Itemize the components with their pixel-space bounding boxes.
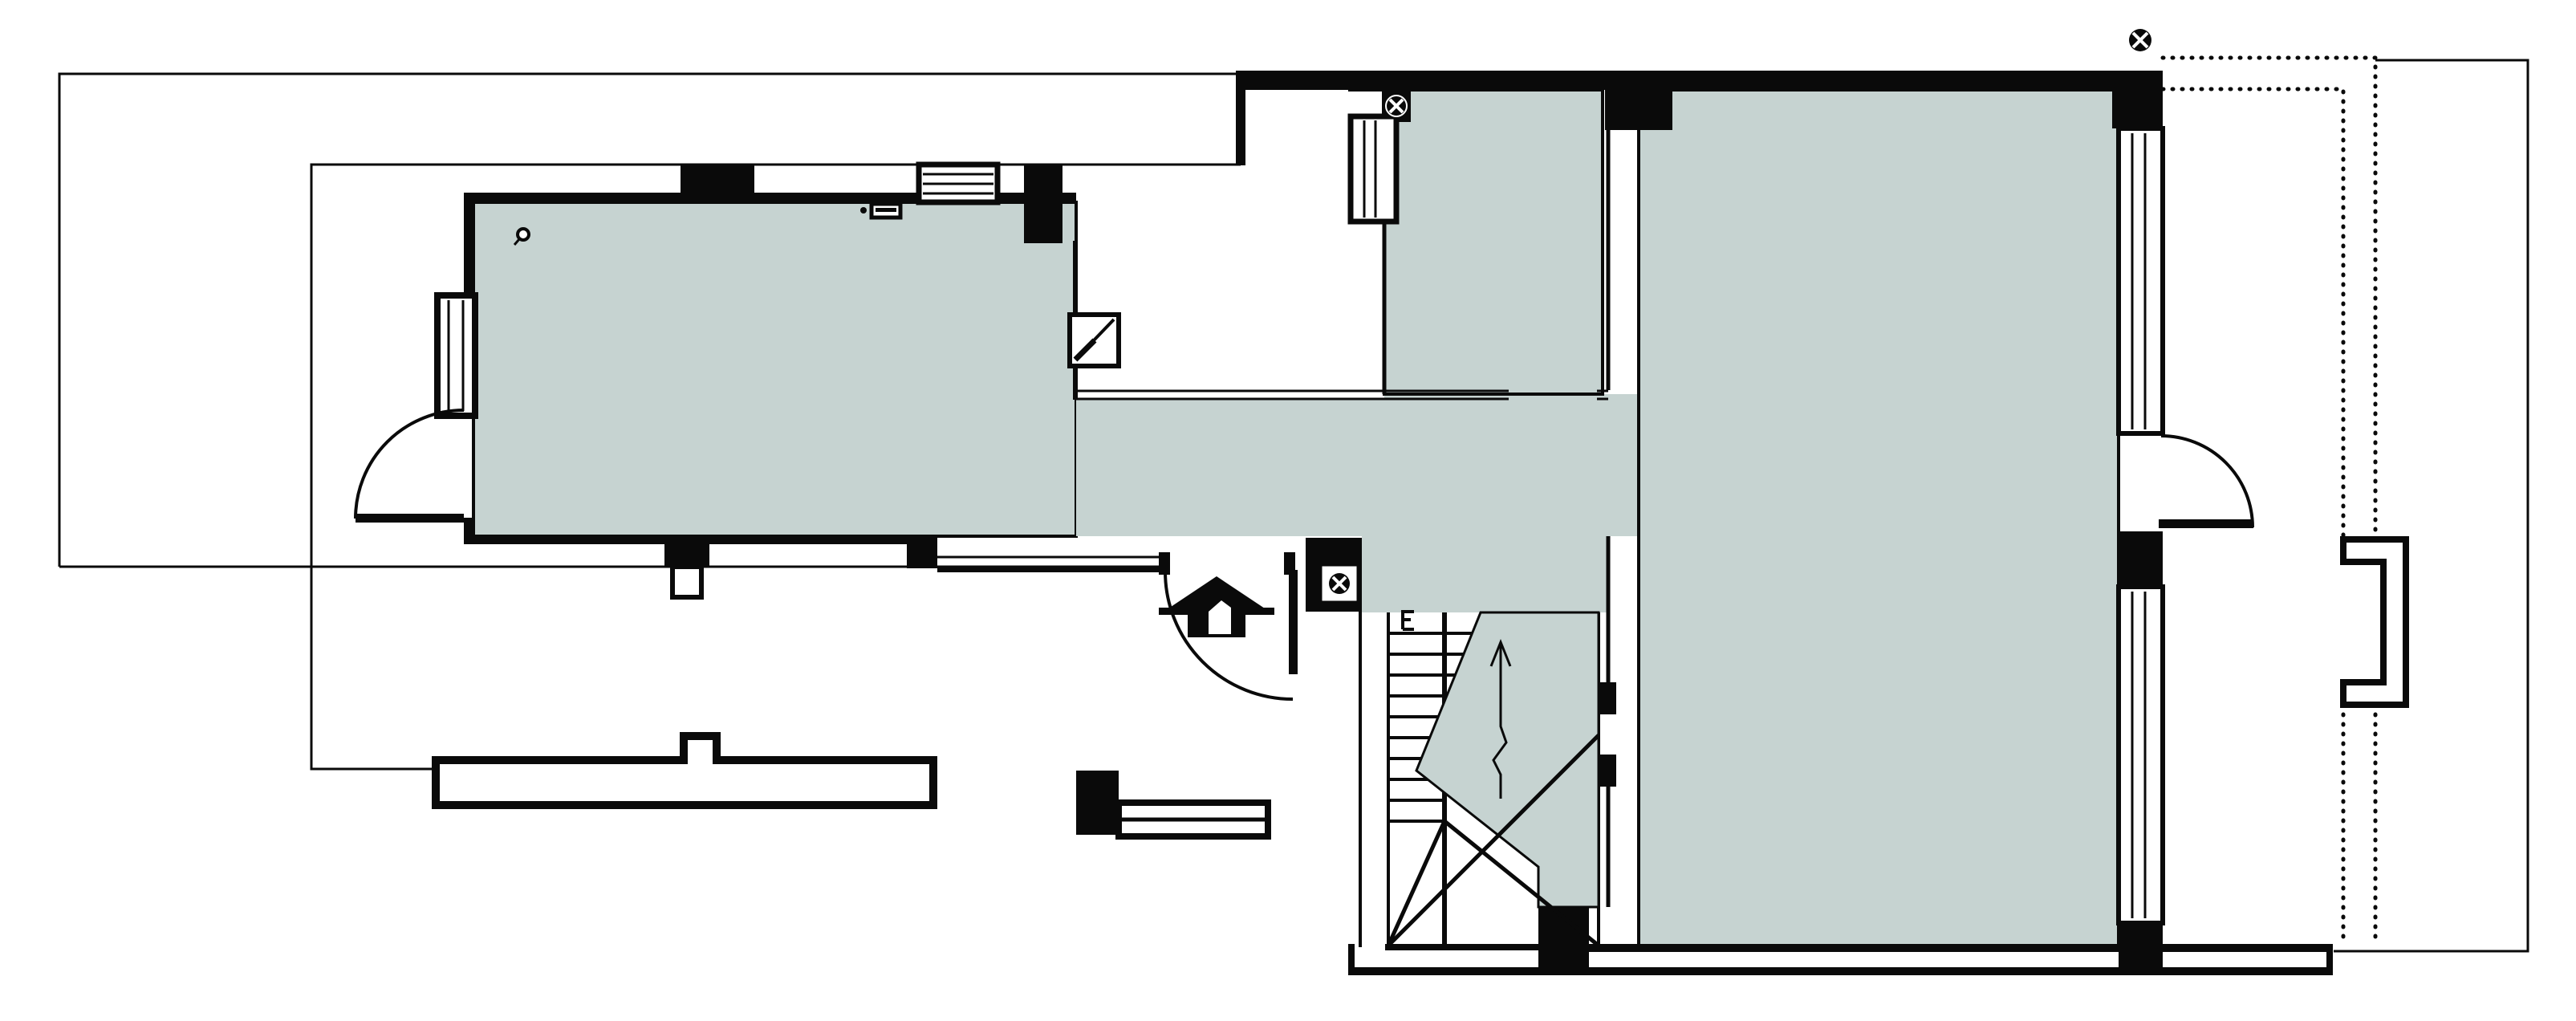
- veranda-column: [681, 165, 754, 202]
- window-east-upper-frame: [2119, 128, 2163, 433]
- winder-diagonal-c: [1388, 821, 1444, 946]
- north-wall-stub: [1236, 71, 1245, 165]
- east-wall-top-chunk: [2119, 90, 2163, 128]
- south-wall-inner: [1538, 944, 2333, 952]
- east-chimney-outline: [2343, 539, 2406, 705]
- south-wall-cap-west: [1348, 944, 1355, 975]
- room-floors: [473, 90, 2119, 946]
- storage-column: [1348, 71, 1424, 92]
- porch-pier-box: [672, 567, 701, 597]
- wall-block-a: [1600, 682, 1616, 714]
- south-wall-outer: [1348, 967, 2333, 975]
- wall-block-b: [1600, 755, 1616, 787]
- planter-block: [1076, 771, 1119, 835]
- door-porch-leaf: [1289, 570, 1298, 674]
- living-bottom-step: [907, 535, 937, 568]
- ceiling-point-icon: [518, 229, 529, 240]
- door-west-swing: [356, 410, 464, 519]
- site-furniture: [436, 736, 1268, 836]
- vent-icon-bar: [876, 208, 896, 212]
- door-east-swing: [2161, 436, 2253, 527]
- floor-plan-viewport: [0, 0, 2576, 1021]
- door-east-leaf: [2159, 519, 2253, 528]
- storage-room-floor: [1384, 90, 1603, 394]
- stair-level-mark: [1403, 612, 1414, 629]
- vent-icon-dot: [860, 207, 867, 214]
- window-east-lower-frame: [2119, 587, 2163, 923]
- stair-hall-floor: [1362, 536, 1608, 612]
- door-west-leaf: [356, 514, 464, 523]
- east-wall-mid-chunk: [2119, 531, 2163, 588]
- living-room-floor: [473, 202, 1076, 536]
- great-room-floor: [1639, 90, 2119, 946]
- hall-floor: [1384, 394, 1639, 536]
- south-wall-cap-east: [2326, 944, 2333, 975]
- window-west-frame: [437, 295, 475, 416]
- living-left-wall-upper: [464, 193, 474, 297]
- corner-column-east: [1024, 165, 1062, 243]
- corridor-floor: [1076, 400, 1384, 536]
- garden-wall: [436, 736, 933, 805]
- roof-dashed-lines: [2163, 58, 2375, 944]
- porch-pier: [664, 535, 709, 567]
- floor-plan-canvas: [0, 0, 2576, 1021]
- hall-column: [1605, 71, 1672, 130]
- eave-dashed-inner: [2163, 89, 2343, 539]
- window-storage-frame: [1351, 116, 1396, 222]
- terrace-outline-east: [2334, 60, 2528, 951]
